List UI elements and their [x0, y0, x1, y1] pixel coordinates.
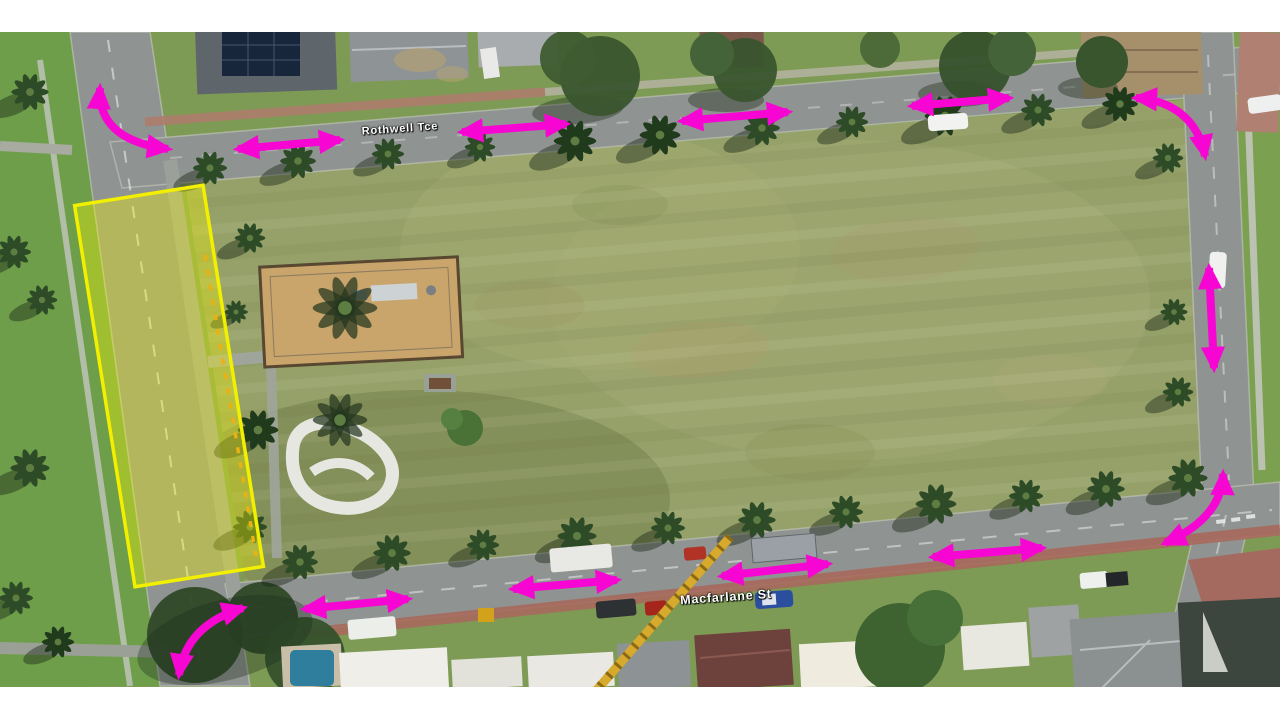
flow-arrow-curved-2 — [1136, 98, 1205, 156]
flow-arrow-curved-4 — [179, 608, 243, 675]
flow-arrow-curved-1 — [100, 88, 168, 149]
highlighted-road-segment — [75, 185, 264, 587]
flow-arrow-straight-1 — [238, 140, 340, 149]
annotated-aerial-map: Rothwell Tce Macfarlane St — [0, 0, 1280, 720]
flow-arrow-straight-6 — [933, 548, 1042, 557]
flow-arrow-straight-4 — [912, 98, 1009, 106]
flow-arrow-straight-2 — [462, 124, 566, 132]
flow-arrow-straight-9 — [305, 599, 408, 609]
flow-arrow-curved-3 — [1165, 474, 1223, 543]
flow-arrow-straight-5 — [1209, 268, 1214, 368]
flow-arrow-straight-7 — [722, 564, 828, 576]
flow-arrow-straight-3 — [682, 112, 788, 121]
flow-arrow-straight-8 — [513, 580, 617, 589]
annotation-overlay — [0, 0, 1280, 720]
